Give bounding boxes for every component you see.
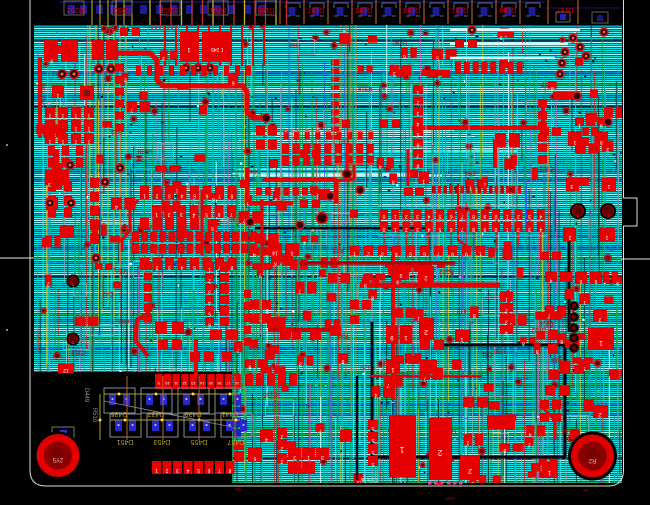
svg-text:1: 1 <box>605 234 608 240</box>
svg-text:1: 1 <box>48 139 51 145</box>
svg-text:7: 7 <box>243 217 246 223</box>
svg-text:1: 1 <box>74 139 77 145</box>
svg-text:D64: D64 <box>464 170 476 176</box>
svg-text:2: 2 <box>367 251 370 257</box>
svg-text:13: 13 <box>191 381 196 386</box>
svg-text:8: 8 <box>228 467 231 473</box>
svg-text:D197: D197 <box>308 6 325 13</box>
svg-text:6: 6 <box>207 467 210 473</box>
svg-text:3: 3 <box>416 213 419 219</box>
svg-text:5: 5 <box>371 461 374 467</box>
svg-text:2: 2 <box>280 445 283 451</box>
svg-text:1: 1 <box>599 339 603 346</box>
svg-text:8: 8 <box>230 193 233 199</box>
svg-text:5: 5 <box>371 449 374 455</box>
svg-text:7: 7 <box>236 347 239 353</box>
svg-text:17: 17 <box>225 381 230 386</box>
svg-text:5: 5 <box>438 226 441 232</box>
svg-text:1: 1 <box>353 251 356 257</box>
svg-text:0: 0 <box>382 213 385 219</box>
svg-text:2: 2 <box>416 100 419 106</box>
svg-text:1: 1 <box>506 213 509 219</box>
svg-text:8: 8 <box>416 163 419 169</box>
svg-text:2: 2 <box>165 467 168 473</box>
svg-text:C150: C150 <box>263 391 278 397</box>
svg-text:C88: C88 <box>118 317 130 323</box>
svg-text:3: 3 <box>321 454 324 460</box>
svg-text:4: 4 <box>192 211 195 217</box>
svg-text:1: 1 <box>506 226 509 232</box>
svg-text:R2: R2 <box>588 457 596 463</box>
svg-text:1: 1 <box>399 445 404 454</box>
svg-text:1: 1 <box>61 139 64 145</box>
svg-text:1: 1 <box>48 113 51 119</box>
svg-text:C410: C410 <box>456 307 471 313</box>
svg-text:1: 1 <box>155 467 158 473</box>
svg-text:D457: D457 <box>228 438 245 445</box>
svg-text:D120: D120 <box>360 364 375 370</box>
svg-text:2: 2 <box>517 213 520 219</box>
svg-text:1: 1 <box>416 89 419 95</box>
svg-text:D199: D199 <box>258 6 275 13</box>
svg-text:2: 2 <box>437 448 442 457</box>
svg-text:D191: D191 <box>452 6 469 13</box>
svg-text:2: 2 <box>606 146 609 152</box>
svg-text:7: 7 <box>230 211 233 217</box>
svg-text:1: 1 <box>505 297 508 303</box>
svg-text:9: 9 <box>364 282 367 288</box>
svg-text:4: 4 <box>416 121 419 127</box>
svg-text:1: 1 <box>607 183 610 189</box>
svg-text:3: 3 <box>416 110 419 116</box>
svg-text:D318: D318 <box>538 320 553 326</box>
svg-text:1: 1 <box>61 113 64 119</box>
svg-text:5: 5 <box>193 264 196 270</box>
svg-text:12: 12 <box>63 367 69 373</box>
svg-text:1: 1 <box>56 92 59 98</box>
svg-text:0: 0 <box>382 226 385 232</box>
svg-text:C212: C212 <box>71 349 86 355</box>
svg-text:6: 6 <box>208 322 211 328</box>
svg-text:4: 4 <box>180 193 183 199</box>
svg-text:3: 3 <box>528 226 531 232</box>
svg-text:D453: D453 <box>154 438 171 445</box>
svg-text:4: 4 <box>505 330 508 336</box>
svg-text:8: 8 <box>230 264 233 270</box>
svg-text:5: 5 <box>438 213 441 219</box>
svg-text:7: 7 <box>218 193 221 199</box>
svg-text:R77: R77 <box>332 247 344 253</box>
svg-text:7: 7 <box>318 427 321 433</box>
svg-text:5: 5 <box>197 467 200 473</box>
svg-text:5: 5 <box>436 54 439 60</box>
svg-text:D203: D203 <box>162 6 179 13</box>
svg-text:R53 D63: R53 D63 <box>38 83 44 107</box>
svg-text:D250: D250 <box>114 6 131 13</box>
svg-text:5: 5 <box>290 250 293 256</box>
svg-text:5: 5 <box>208 311 211 317</box>
svg-text:D310: D310 <box>137 148 152 154</box>
svg-text:5: 5 <box>71 340 74 346</box>
svg-text:1: 1 <box>87 126 90 132</box>
svg-text:2: 2 <box>155 264 158 270</box>
svg-text:9: 9 <box>503 447 506 453</box>
svg-text:3: 3 <box>180 211 183 217</box>
svg-text:8: 8 <box>472 213 475 219</box>
svg-text:4: 4 <box>427 213 430 219</box>
svg-text:7: 7 <box>437 251 440 257</box>
svg-text:1: 1 <box>394 226 397 232</box>
svg-text:8: 8 <box>472 226 475 232</box>
svg-text:D189: D189 <box>500 6 517 13</box>
svg-text:9: 9 <box>399 272 402 278</box>
svg-text:8: 8 <box>248 364 251 370</box>
svg-text:2: 2 <box>528 442 531 448</box>
svg-text:4: 4 <box>427 226 430 232</box>
svg-text:2: 2 <box>424 328 428 335</box>
svg-text:0: 0 <box>494 213 497 219</box>
svg-text:16: 16 <box>217 381 222 386</box>
svg-text:3: 3 <box>416 226 419 232</box>
svg-text:COLW: COLW <box>360 476 378 482</box>
svg-text:7: 7 <box>298 288 301 294</box>
svg-text:6: 6 <box>217 211 220 217</box>
svg-text:R318: R318 <box>357 85 372 91</box>
svg-text:6: 6 <box>416 142 419 148</box>
svg-text:8: 8 <box>560 338 563 344</box>
svg-text:4: 4 <box>549 277 552 283</box>
svg-text:1: 1 <box>208 267 211 273</box>
svg-text:3: 3 <box>208 289 211 295</box>
svg-text:6: 6 <box>450 226 453 232</box>
svg-text:C305: C305 <box>539 164 554 170</box>
svg-text:5: 5 <box>416 131 419 137</box>
svg-text:C77: C77 <box>188 200 200 206</box>
svg-text:8: 8 <box>576 212 579 218</box>
svg-text:6: 6 <box>371 294 374 300</box>
svg-text:5: 5 <box>193 193 196 199</box>
svg-text:D55: D55 <box>249 167 261 173</box>
svg-text:7: 7 <box>461 226 464 232</box>
svg-text:9: 9 <box>594 278 597 284</box>
svg-text:2: 2 <box>208 278 211 284</box>
svg-text:3: 3 <box>162 55 165 61</box>
svg-text:4: 4 <box>208 300 211 306</box>
svg-text:6: 6 <box>232 80 235 86</box>
svg-text:D245: D245 <box>211 46 223 52</box>
svg-text:3: 3 <box>299 361 302 367</box>
svg-text:3: 3 <box>381 251 384 257</box>
svg-text:8: 8 <box>536 348 539 354</box>
svg-text:8: 8 <box>522 340 525 346</box>
svg-text:2: 2 <box>568 234 571 240</box>
svg-text:R66: R66 <box>288 41 300 47</box>
svg-text:D193: D193 <box>404 6 421 13</box>
svg-text:4: 4 <box>265 436 268 442</box>
svg-text:2: 2 <box>466 440 469 446</box>
svg-text:1: 1 <box>74 113 77 119</box>
svg-text:3: 3 <box>48 181 51 187</box>
svg-text:5: 5 <box>71 282 74 288</box>
svg-text:9: 9 <box>465 251 468 257</box>
svg-text:1: 1 <box>578 122 581 128</box>
svg-text:C91: C91 <box>337 137 349 143</box>
svg-text:4: 4 <box>180 264 183 270</box>
svg-text:5: 5 <box>409 251 412 257</box>
svg-text:5: 5 <box>606 212 609 218</box>
svg-text:7: 7 <box>387 382 390 388</box>
svg-text:7: 7 <box>416 152 419 158</box>
svg-text:D252: D252 <box>67 6 84 13</box>
svg-text:4: 4 <box>379 163 382 169</box>
svg-text:2: 2 <box>280 458 283 464</box>
svg-text:7: 7 <box>461 213 464 219</box>
svg-text:2: 2 <box>598 316 601 322</box>
svg-text:R510: R510 <box>91 408 97 423</box>
svg-text:4: 4 <box>186 467 189 473</box>
svg-text:2: 2 <box>167 211 170 217</box>
svg-text:9: 9 <box>483 213 486 219</box>
svg-text:7: 7 <box>130 107 133 113</box>
svg-text:1: 1 <box>422 178 425 184</box>
svg-text:1: 1 <box>143 193 146 199</box>
svg-text:8: 8 <box>499 34 502 40</box>
svg-text:2: 2 <box>505 308 508 314</box>
svg-text:14: 14 <box>272 250 278 256</box>
svg-text:6: 6 <box>403 53 406 59</box>
svg-text:3: 3 <box>570 183 573 189</box>
svg-text:2: 2 <box>468 467 472 474</box>
svg-text:C55: C55 <box>114 267 126 273</box>
svg-text:1: 1 <box>307 454 310 460</box>
svg-text:8: 8 <box>341 358 344 364</box>
svg-text:2: 2 <box>155 193 158 199</box>
svg-text:C42: C42 <box>102 290 114 296</box>
svg-text:4: 4 <box>374 392 377 398</box>
svg-text:1: 1 <box>583 299 586 305</box>
svg-text:6: 6 <box>205 193 208 199</box>
svg-text:9: 9 <box>50 58 53 64</box>
svg-text:D240: D240 <box>392 39 407 45</box>
svg-text:5: 5 <box>253 455 256 461</box>
svg-text:2: 2 <box>47 281 50 287</box>
svg-text:2Y5: 2Y5 <box>52 456 63 462</box>
svg-text:12: 12 <box>182 381 187 386</box>
svg-text:6: 6 <box>211 225 214 231</box>
svg-text:8: 8 <box>392 179 395 185</box>
svg-text:2: 2 <box>293 454 296 460</box>
svg-text:1: 1 <box>74 126 77 132</box>
svg-text:4: 4 <box>115 204 118 210</box>
svg-text:D31: D31 <box>306 142 318 148</box>
svg-text:4: 4 <box>539 226 542 232</box>
svg-text:C31: C31 <box>481 351 493 357</box>
svg-text:4: 4 <box>303 239 306 245</box>
svg-text:9: 9 <box>600 122 603 128</box>
svg-text:2: 2 <box>280 433 283 439</box>
svg-text:1: 1 <box>573 139 576 145</box>
svg-text:5: 5 <box>579 278 582 284</box>
svg-text:1: 1 <box>394 213 397 219</box>
svg-text:3: 3 <box>168 264 171 270</box>
svg-text:5: 5 <box>371 425 374 431</box>
svg-text:8: 8 <box>451 251 454 257</box>
svg-text:1: 1 <box>460 336 463 342</box>
svg-text:5: 5 <box>371 437 374 443</box>
svg-text:3: 3 <box>528 213 531 219</box>
svg-text:9: 9 <box>600 139 603 145</box>
svg-text:6: 6 <box>450 213 453 219</box>
svg-text:3: 3 <box>505 319 508 325</box>
svg-text:2: 2 <box>124 77 127 83</box>
svg-text:C66: C66 <box>199 72 211 78</box>
svg-text:1: 1 <box>87 113 90 119</box>
svg-text:R150: R150 <box>493 348 508 354</box>
svg-text:6: 6 <box>212 196 215 202</box>
svg-text:4: 4 <box>539 213 542 219</box>
svg-text:15: 15 <box>208 381 213 386</box>
svg-text:3: 3 <box>393 70 396 76</box>
svg-text:7: 7 <box>258 271 261 277</box>
svg-text:1: 1 <box>479 251 482 257</box>
svg-text:2: 2 <box>405 226 408 232</box>
svg-text:14: 14 <box>199 381 204 386</box>
svg-text:R222: R222 <box>439 268 454 274</box>
svg-text:6: 6 <box>423 251 426 257</box>
svg-text:7: 7 <box>218 467 221 473</box>
svg-text:1: 1 <box>97 267 100 273</box>
svg-text:0: 0 <box>494 226 497 232</box>
svg-text:9: 9 <box>483 226 486 232</box>
svg-text:2: 2 <box>405 213 408 219</box>
svg-text:D451: D451 <box>117 438 134 445</box>
svg-text:3: 3 <box>176 467 179 473</box>
svg-text:3: 3 <box>168 193 171 199</box>
svg-text:10: 10 <box>164 381 169 386</box>
svg-text:1: 1 <box>155 211 158 217</box>
svg-text:9: 9 <box>616 280 619 286</box>
svg-text:2: 2 <box>517 226 520 232</box>
svg-text:4: 4 <box>529 431 532 437</box>
svg-text:D449: D449 <box>83 388 89 403</box>
svg-text:5: 5 <box>205 211 208 217</box>
svg-text:8: 8 <box>473 312 476 318</box>
svg-text:1: 1 <box>87 139 90 145</box>
svg-text:R12: R12 <box>110 128 122 134</box>
svg-text:D187: D187 <box>557 6 574 13</box>
svg-text:8: 8 <box>551 85 554 91</box>
svg-text:D201: D201 <box>210 6 227 13</box>
svg-text:D195: D195 <box>356 6 373 13</box>
svg-text:4: 4 <box>395 251 398 257</box>
